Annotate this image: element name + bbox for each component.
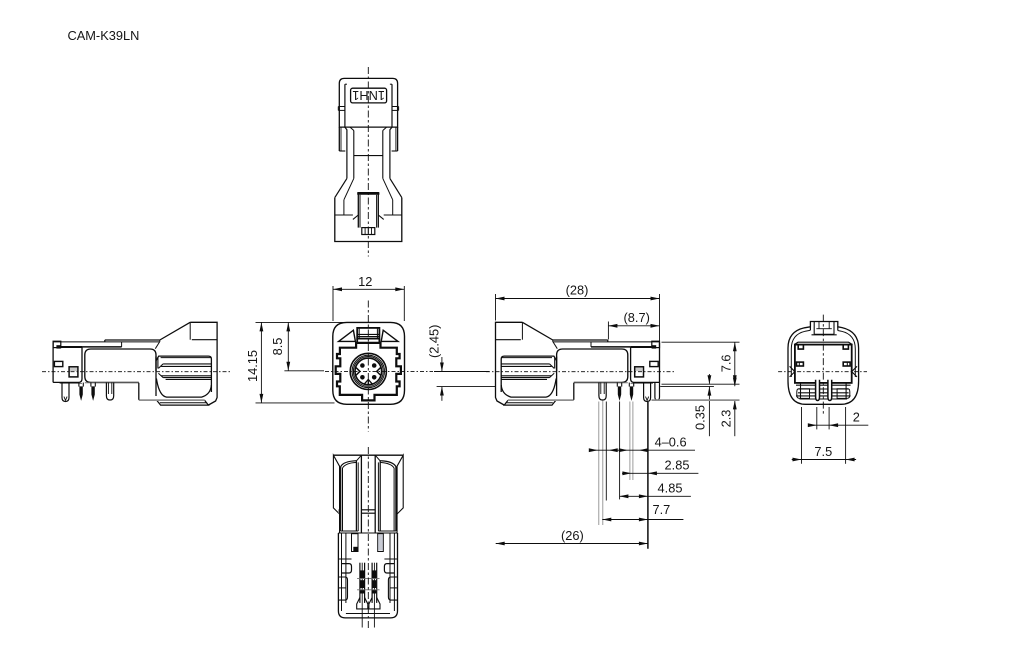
svg-text:8.5: 8.5 bbox=[270, 338, 285, 356]
svg-text:4.85: 4.85 bbox=[658, 481, 683, 496]
svg-text:0.35: 0.35 bbox=[692, 405, 707, 430]
svg-text:2.85: 2.85 bbox=[665, 458, 690, 473]
svg-text:(8.7): (8.7) bbox=[624, 310, 650, 325]
svg-text:(28): (28) bbox=[566, 283, 589, 298]
svg-text:2: 2 bbox=[853, 410, 860, 425]
svg-text:2.3: 2.3 bbox=[718, 410, 733, 428]
svg-text:7.5: 7.5 bbox=[814, 444, 832, 459]
svg-text:7.6: 7.6 bbox=[718, 355, 733, 373]
svg-text:7.7: 7.7 bbox=[653, 502, 671, 517]
svg-text:12: 12 bbox=[358, 274, 372, 289]
svg-text:(2.45): (2.45) bbox=[427, 325, 442, 358]
svg-text:(26): (26) bbox=[561, 528, 584, 543]
svg-text:4–0.6: 4–0.6 bbox=[655, 435, 687, 450]
svg-text:CAM-K39LN: CAM-K39LN bbox=[68, 28, 140, 43]
svg-text:14.15: 14.15 bbox=[245, 350, 260, 382]
